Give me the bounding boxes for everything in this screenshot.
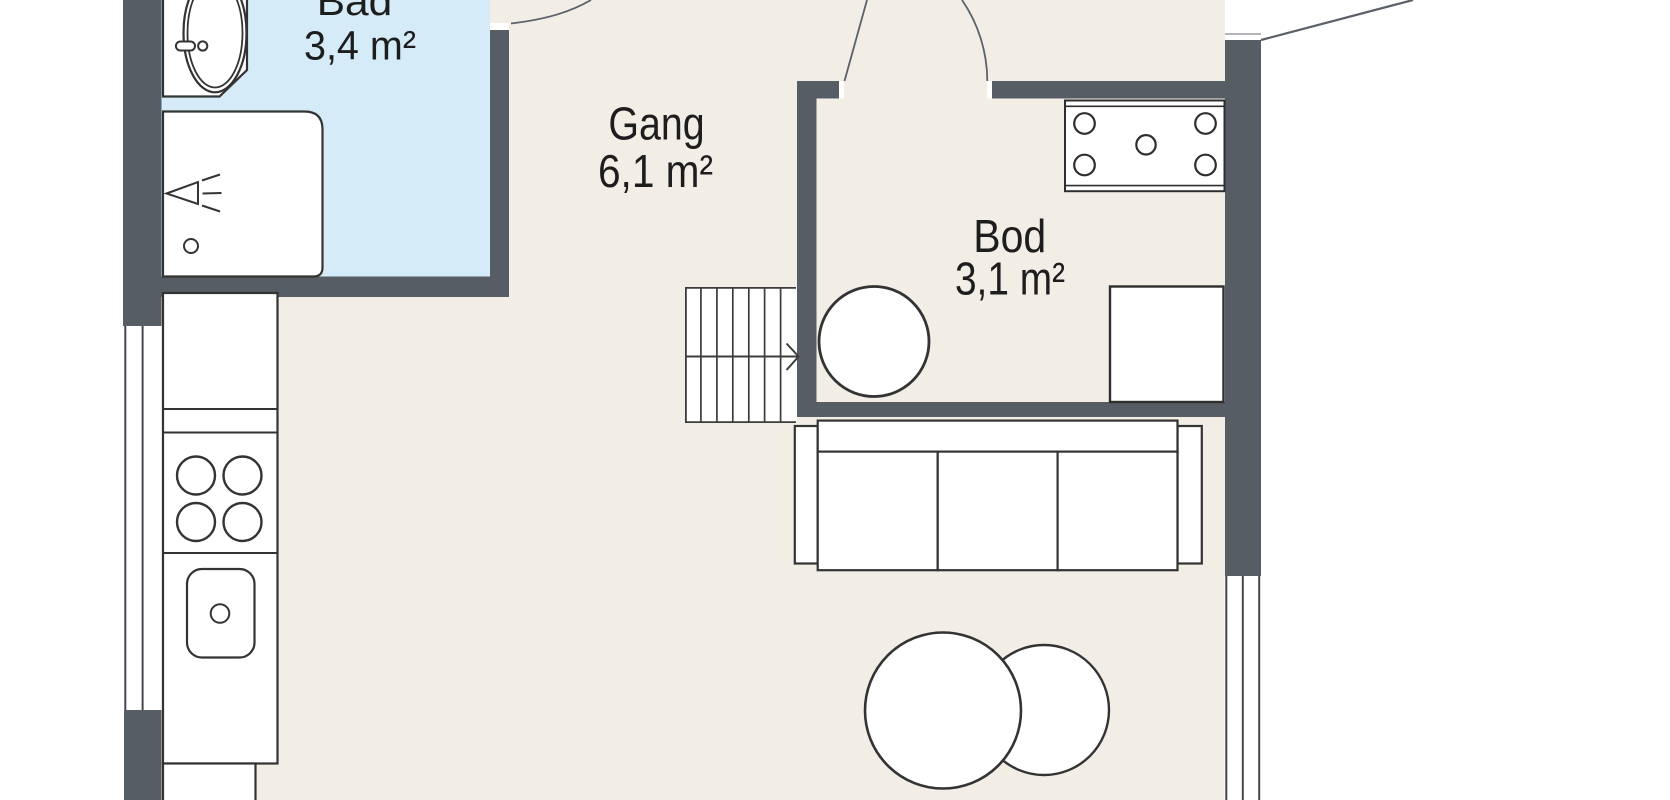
svg-text:Bad: Bad	[317, 0, 393, 24]
svg-text:3,1 m²: 3,1 m²	[955, 253, 1065, 305]
svg-text:Gang: Gang	[608, 99, 704, 151]
svg-text:6,1 m²: 6,1 m²	[598, 147, 713, 198]
svg-text:3,4 m²: 3,4 m²	[304, 23, 416, 69]
